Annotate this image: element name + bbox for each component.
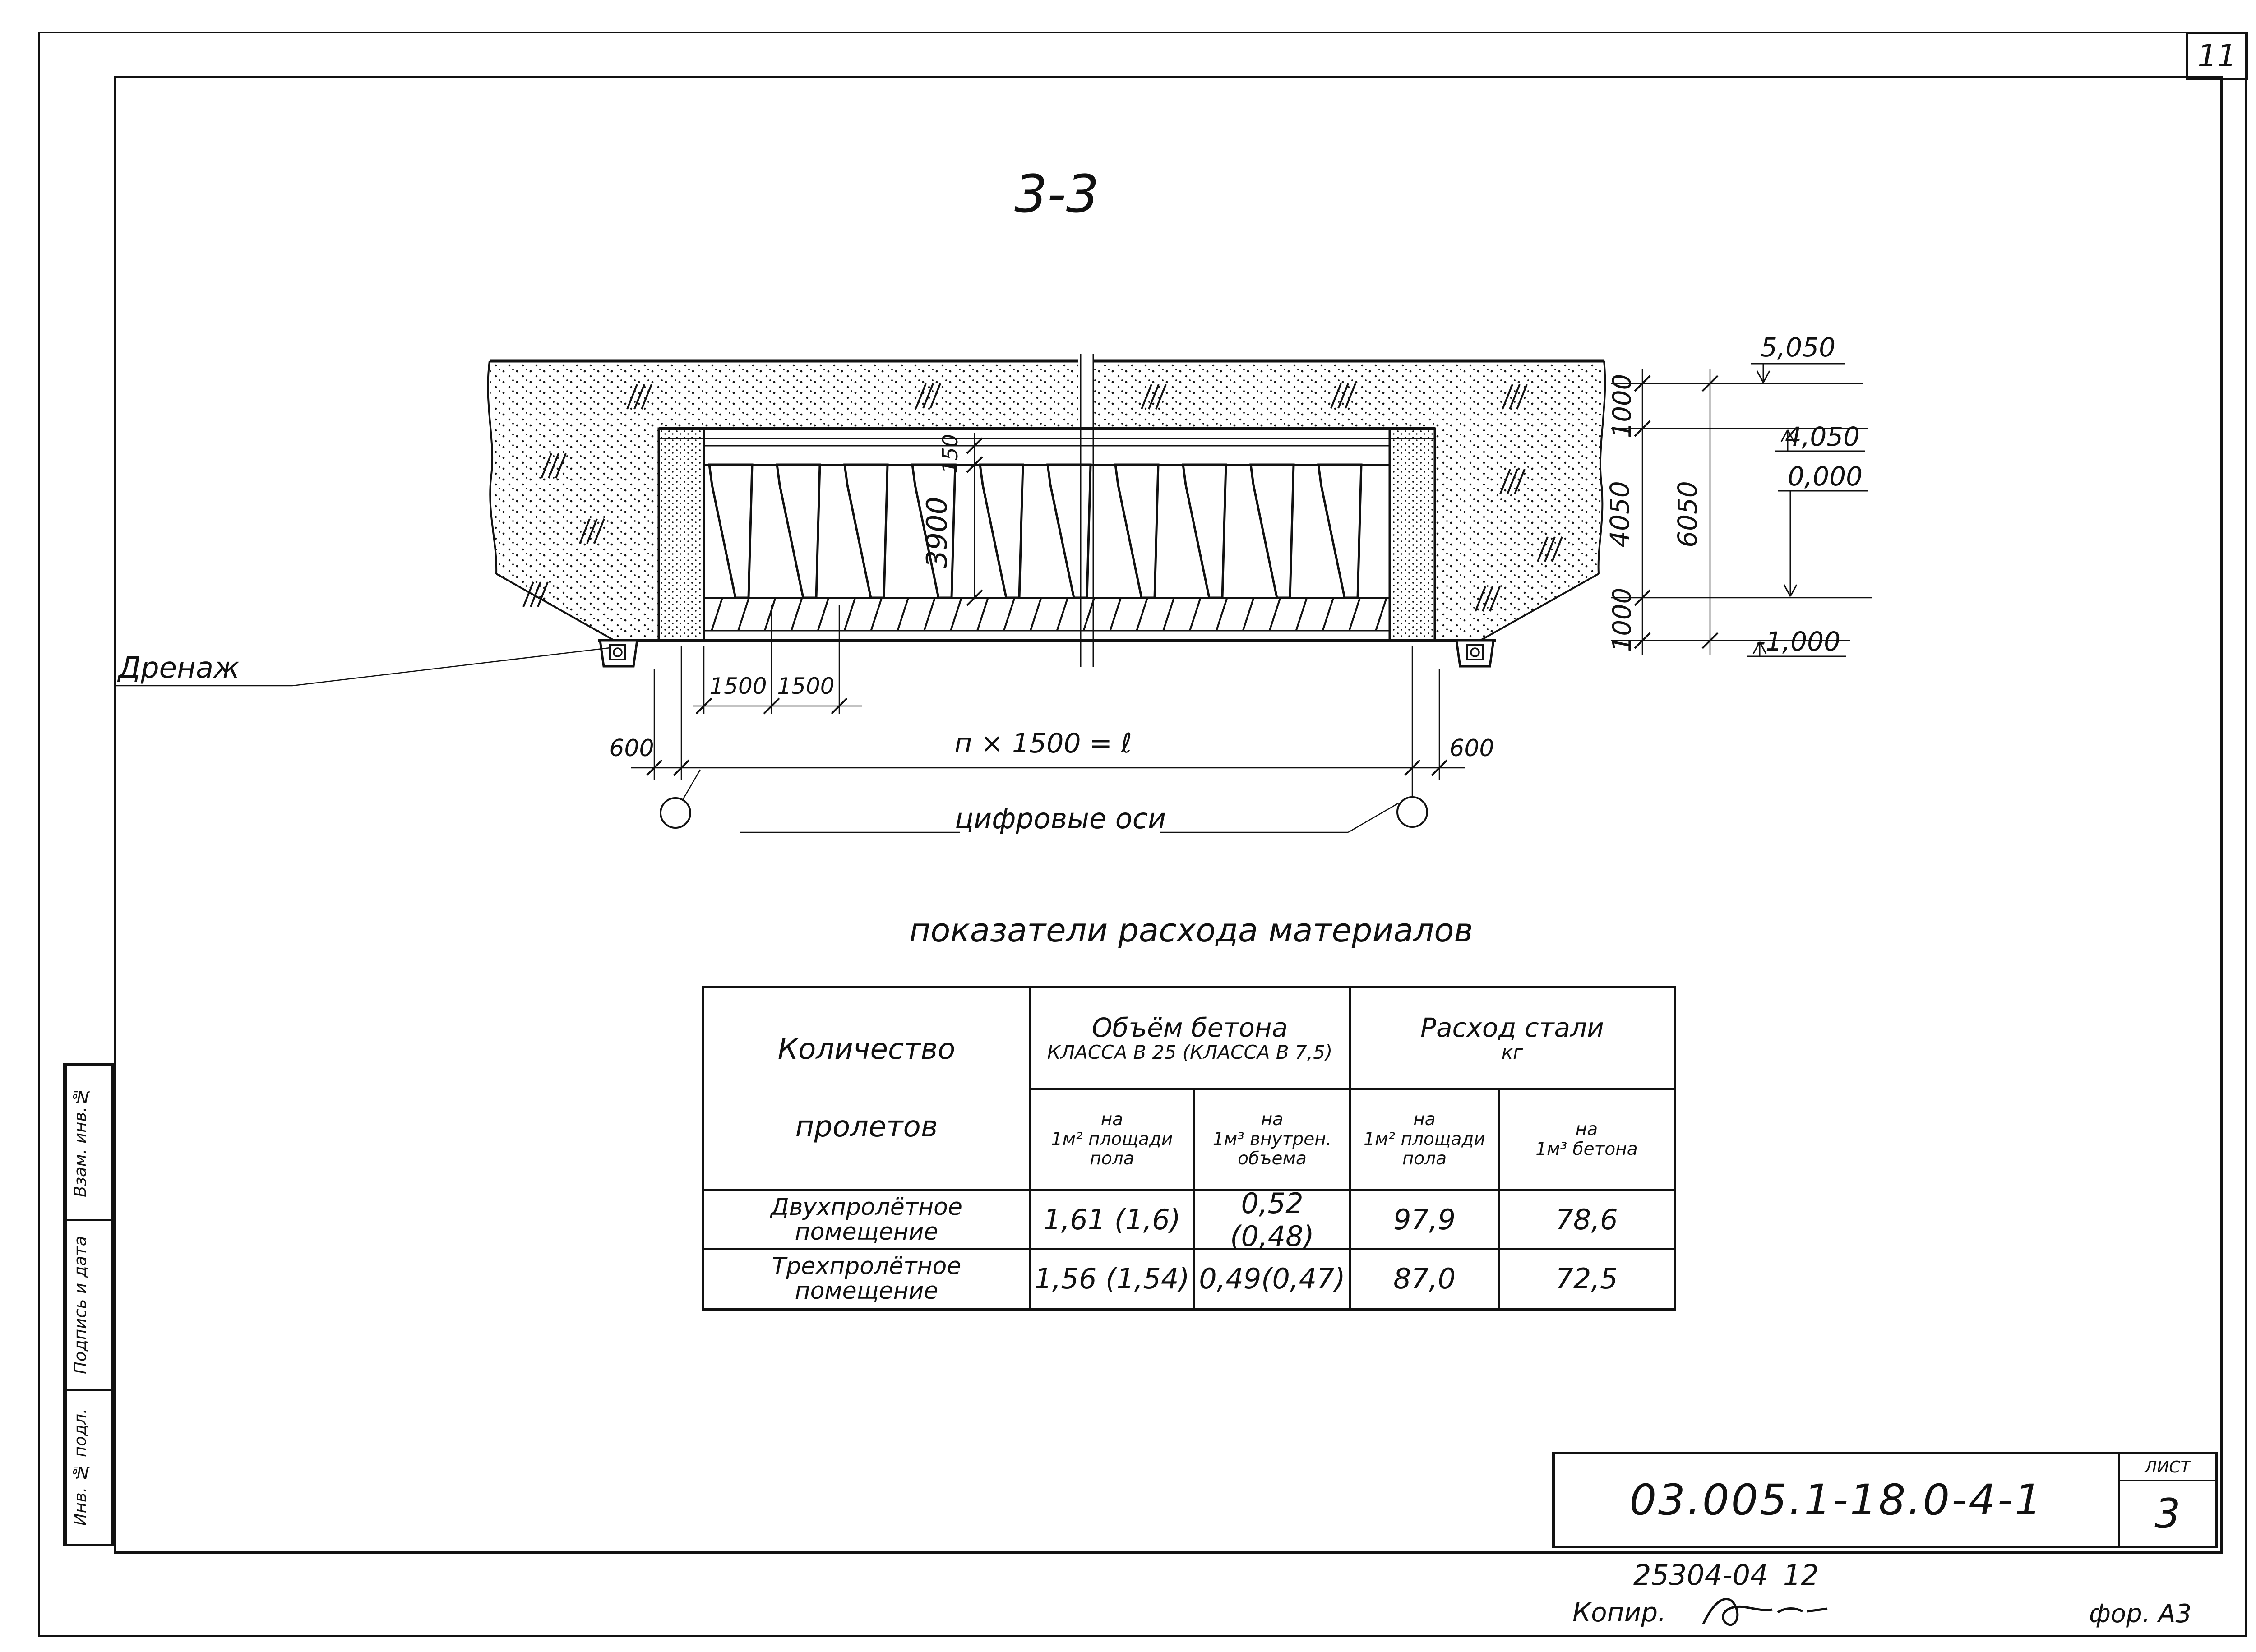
row2-v2: 0,49(0,47) [1195, 1250, 1351, 1308]
row2-name2: помещение [795, 1279, 938, 1304]
row1-name2: помещение [795, 1220, 938, 1245]
table-row: Двухпролётное помещение [704, 1191, 1031, 1250]
stamp-podpis-field [93, 1221, 111, 1389]
format-label: фор. А3 [2089, 1599, 2191, 1629]
col-header-spans: Количество пролетов [704, 988, 1031, 1191]
sub3-l1: на [1413, 1110, 1435, 1130]
stamp-podpis-label: Подпись и дата [65, 1221, 93, 1389]
sub-header-3: на 1м² площади пола [1351, 1090, 1500, 1191]
sub4-l2: 1м³ бетона [1535, 1140, 1637, 1159]
row2-v3: 87,0 [1351, 1250, 1500, 1308]
group-concrete-line2: КЛАССА В 25 (КЛАССА В 7,5) [1047, 1042, 1332, 1063]
copy-label: Копир. [1572, 1597, 1666, 1628]
group-header-steel: Расход стали кг [1351, 988, 1674, 1090]
group-steel-line1: Расход стали [1420, 1014, 1604, 1043]
row2-name1: Трехпролётное [772, 1254, 962, 1279]
sub-header-4: на 1м³ бетона [1500, 1090, 1674, 1191]
stamp-podpis: Подпись и дата [63, 1219, 114, 1391]
row1-v2: 0,52 (0,48) [1195, 1191, 1351, 1250]
order-qty: 12 [1783, 1559, 1819, 1592]
stamp-vzam-label: Взам. инв.№ [65, 1066, 93, 1219]
group-header-concrete: Объём бетона КЛАССА В 25 (КЛАССА В 7,5) [1031, 988, 1351, 1090]
materials-table: Количество пролетов Объём бетона КЛАССА … [702, 986, 1676, 1311]
row2-v4: 72,5 [1500, 1250, 1674, 1308]
row1-v3: 97,9 [1351, 1191, 1500, 1250]
col-header-spans-line2: пролетов [795, 1111, 938, 1144]
row2-v1: 1,56 (1,54) [1031, 1250, 1195, 1308]
sheet-number: 3 [2120, 1481, 2215, 1546]
group-steel-line2: кг [1502, 1042, 1523, 1063]
sub-header-2: на 1м³ внутрен. объема [1195, 1090, 1351, 1191]
sheet-label: ЛИСТ [2120, 1454, 2215, 1481]
sub4-l1: на [1576, 1120, 1598, 1140]
sub2-l3: объема [1238, 1149, 1307, 1169]
stamp-inv-field [93, 1391, 111, 1544]
sheet-cell: ЛИСТ 3 [2118, 1454, 2215, 1546]
title-block: 03.005.1-18.0-4-1 ЛИСТ 3 [1552, 1452, 2218, 1548]
page-number: 11 [2197, 38, 2237, 74]
doc-number: 03.005.1-18.0-4-1 [1555, 1454, 2118, 1546]
sub3-l2: 1м² площади [1364, 1130, 1485, 1149]
col-header-spans-line1: Количество [778, 1033, 956, 1066]
stamp-inv: Инв. № подл. [63, 1389, 114, 1546]
row1-name1: Двухпролётное [771, 1195, 962, 1220]
page-number-box: 11 [2186, 32, 2248, 80]
margin-stamps: Взам. инв.№ Подпись и дата Инв. № подл. [63, 1066, 114, 1546]
row1-v1: 1,61 (1,6) [1031, 1191, 1195, 1250]
sub3-l3: пола [1402, 1149, 1447, 1169]
row1-v4: 78,6 [1500, 1191, 1674, 1250]
stamp-inv-label: Инв. № подл. [65, 1391, 93, 1544]
sub2-l2: 1м³ внутрен. [1213, 1130, 1331, 1149]
table-row: Трехпролётное помещение [704, 1250, 1031, 1308]
stamp-vzam: Взам. инв.№ [63, 1063, 114, 1221]
sub1-l3: пола [1090, 1149, 1134, 1169]
main-frame [114, 76, 2223, 1554]
group-concrete-line1: Объём бетона [1092, 1014, 1288, 1043]
sub1-l1: на [1101, 1110, 1123, 1130]
sub-header-1: на 1м² площади пола [1031, 1090, 1195, 1191]
table-title: показатели расхода материалов [871, 911, 1512, 949]
stamp-vzam-field [93, 1066, 111, 1219]
order-code: 25304-04 [1633, 1559, 1768, 1592]
sub1-l2: 1м² площади [1051, 1130, 1173, 1149]
sub2-l1: на [1261, 1110, 1283, 1130]
